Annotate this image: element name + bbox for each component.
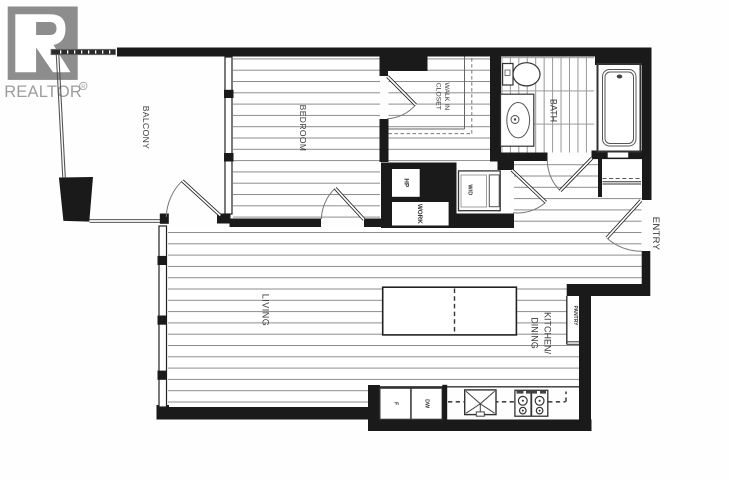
svg-text:BALCONY: BALCONY: [141, 106, 151, 149]
svg-text:PANTRY: PANTRY: [572, 306, 578, 327]
svg-text:CLOSET: CLOSET: [435, 83, 442, 110]
svg-text:W/D: W/D: [467, 184, 473, 195]
svg-text:DW: DW: [424, 399, 430, 409]
svg-text:WORK: WORK: [416, 204, 423, 224]
svg-text:KITCHEN/: KITCHEN/: [543, 312, 553, 355]
svg-text:R: R: [81, 84, 85, 90]
svg-text:BATH: BATH: [549, 99, 559, 122]
svg-text:HP: HP: [402, 178, 409, 187]
svg-text:WALK IN: WALK IN: [443, 82, 450, 110]
svg-text:LIVING: LIVING: [261, 294, 271, 327]
svg-text:BEDROOM: BEDROOM: [298, 105, 308, 152]
svg-text:ENTRY: ENTRY: [650, 217, 661, 251]
svg-text:DINING: DINING: [530, 317, 540, 349]
svg-text:REALTOR: REALTOR: [4, 83, 82, 101]
